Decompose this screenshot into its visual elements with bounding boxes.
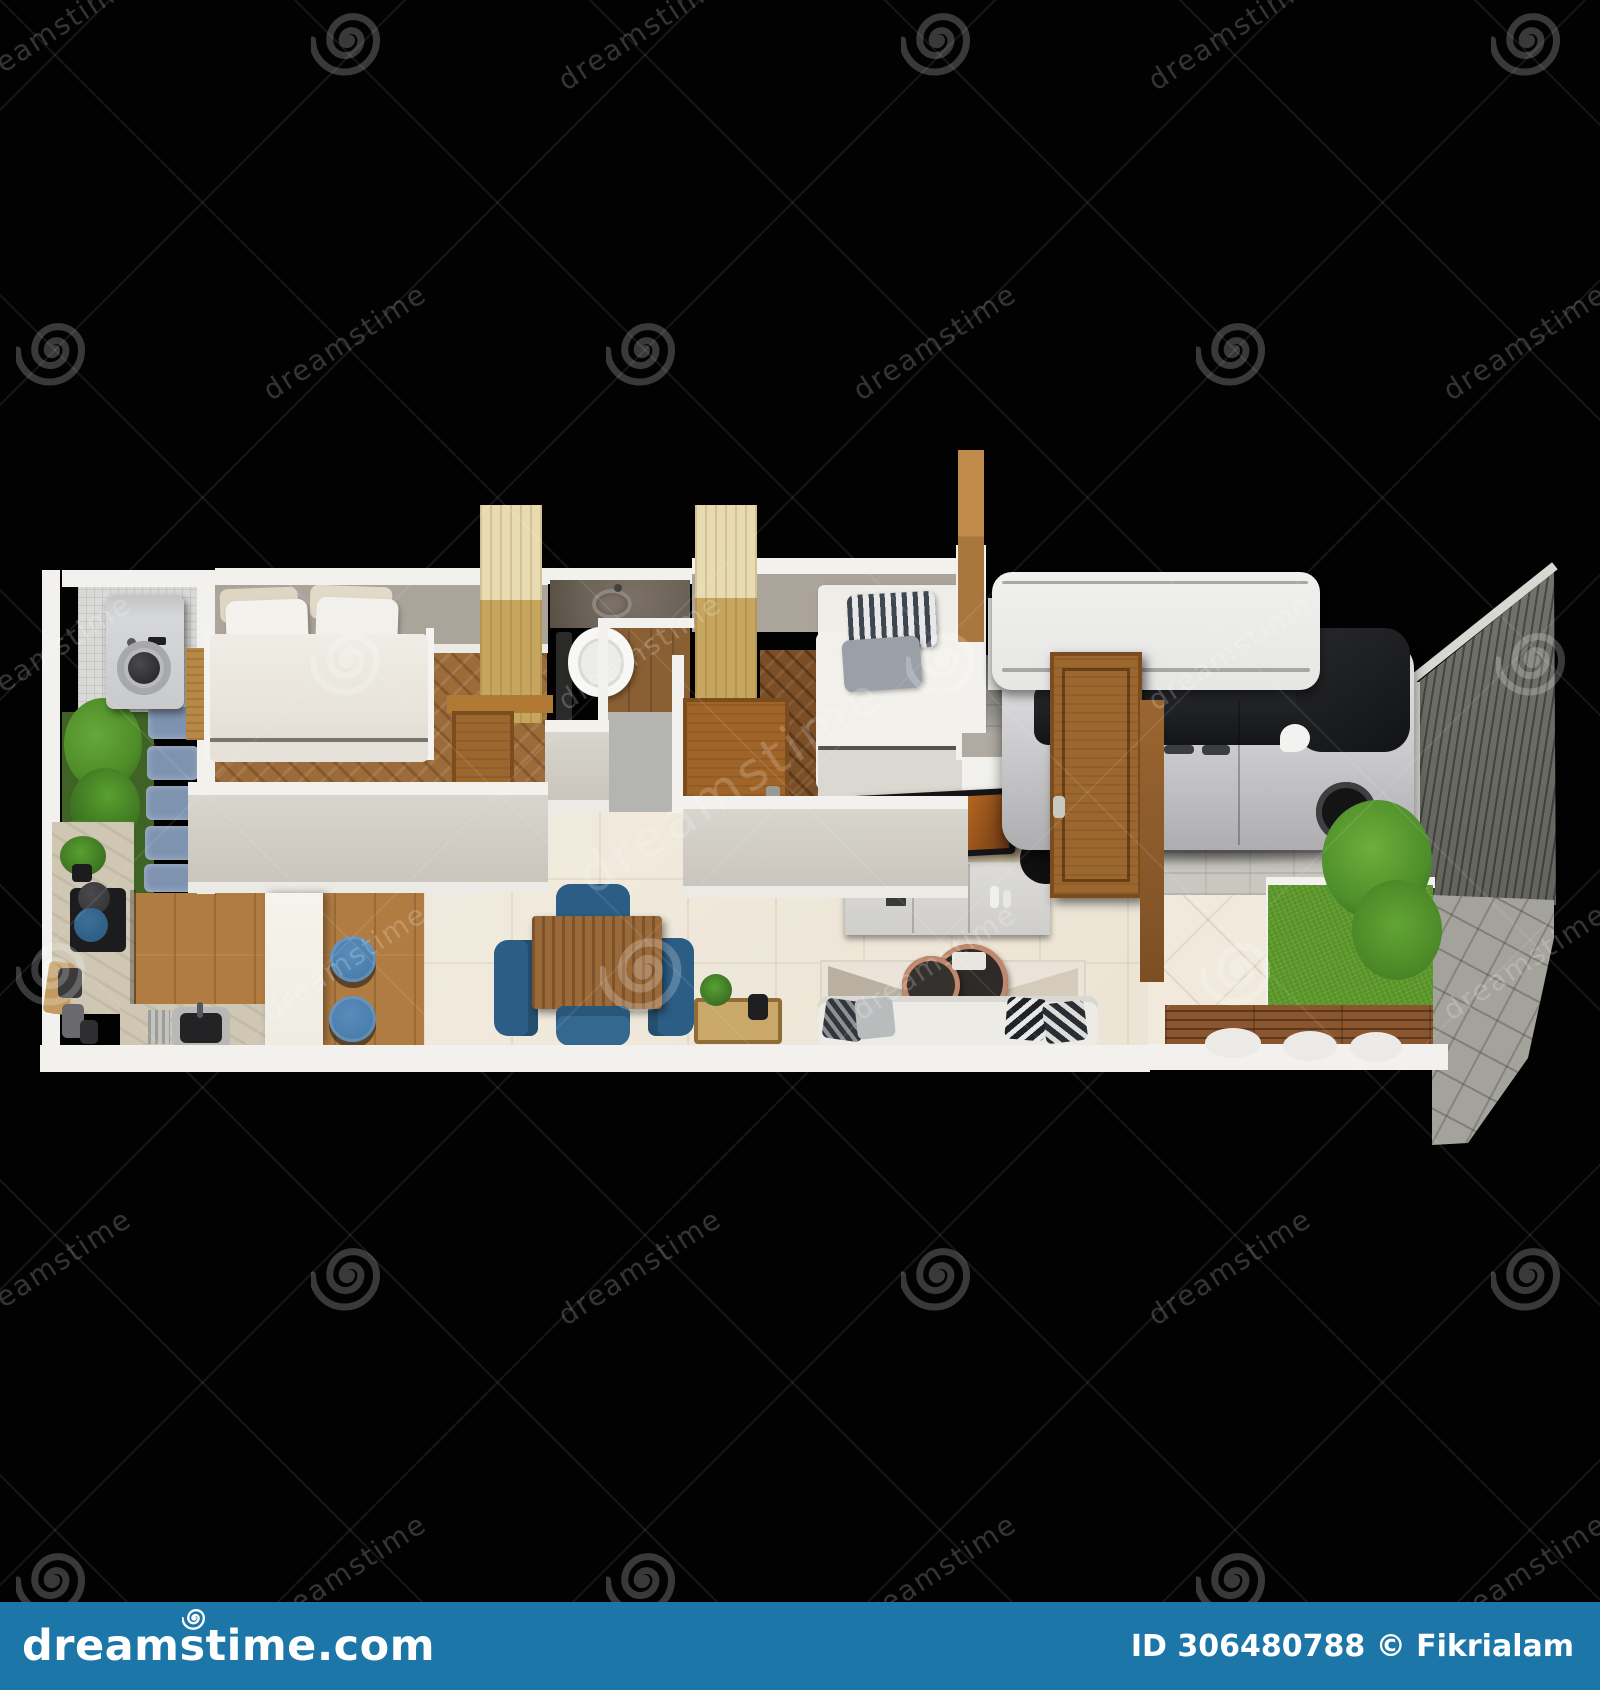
dreamstime-footer-bar: dreamstime.com ID 306480788 © Fikrialam bbox=[0, 1602, 1600, 1690]
front-garden-plant bbox=[1352, 880, 1442, 980]
wardrobe-pillar bbox=[480, 505, 542, 602]
stock-photo-canvas: dreamstime dreamstime dreamstime dreamst… bbox=[0, 0, 1600, 1690]
bedroom1-front-wall-top bbox=[188, 782, 548, 795]
kitchen-jar bbox=[80, 1020, 98, 1044]
side-table-plant bbox=[700, 974, 732, 1006]
shower-glass-frame bbox=[598, 618, 608, 726]
decor-vase bbox=[990, 886, 999, 908]
entry-door-frame bbox=[1140, 700, 1164, 982]
bedroom2-door bbox=[683, 698, 789, 800]
step-pad bbox=[1350, 1032, 1402, 1062]
tv-console-seam bbox=[968, 864, 970, 933]
corner-wood-pillar bbox=[958, 450, 984, 642]
kitchen-jar bbox=[58, 968, 82, 998]
flagstone-path bbox=[1428, 893, 1556, 1148]
kettle-blue bbox=[74, 908, 108, 942]
car-mirror bbox=[1280, 724, 1310, 752]
bar-stool bbox=[330, 936, 376, 982]
bathroom-hall-tile bbox=[606, 712, 674, 812]
dreamstime-logo: dreamstime.com bbox=[22, 1621, 435, 1671]
bedroom1-front-wall-face bbox=[188, 795, 548, 884]
side-table-decor bbox=[748, 994, 768, 1020]
washing-machine-drum-glass bbox=[128, 652, 160, 684]
car-door-handle bbox=[1202, 745, 1230, 755]
kitchen-island bbox=[265, 893, 323, 1045]
bathroom-faucet bbox=[614, 584, 622, 592]
carport-roof bbox=[992, 572, 1320, 690]
bar-stool bbox=[329, 996, 376, 1042]
step-pad bbox=[1283, 1031, 1337, 1061]
svg-text:dreamstime: dreamstime bbox=[257, 277, 433, 407]
wardrobe-pillar bbox=[695, 505, 757, 600]
bed2-pillow-gray bbox=[841, 635, 922, 692]
bed1-duvet bbox=[210, 634, 428, 740]
bed1-blanket bbox=[210, 742, 428, 762]
stepping-stone bbox=[147, 746, 199, 780]
svg-text:dreamstime: dreamstime bbox=[847, 277, 1023, 407]
entry-door-handle bbox=[1053, 796, 1065, 818]
bathroom-sink bbox=[592, 589, 632, 619]
car-door-seam bbox=[1238, 700, 1240, 845]
outer-wall-bottom bbox=[40, 1045, 1150, 1072]
entry-door-panel bbox=[1062, 668, 1130, 882]
image-id-credit: ID 306480788 © Fikrialam bbox=[1131, 1629, 1574, 1664]
kitchen-plant-pot bbox=[72, 864, 92, 882]
bedroom2-front-wall-top bbox=[683, 796, 968, 809]
bedroom2-front-wall-base bbox=[683, 886, 968, 898]
bedroom1-front-wall-base bbox=[188, 882, 548, 893]
bathroom-front-wall-base bbox=[545, 800, 609, 813]
svg-text:dreamstime: dreamstime bbox=[1142, 1202, 1318, 1332]
svg-text:dreamstime: dreamstime bbox=[1437, 277, 1600, 407]
step-pad bbox=[1205, 1028, 1261, 1058]
bathroom-front-wall bbox=[545, 720, 609, 732]
sofa-pillow bbox=[1042, 1000, 1089, 1045]
dining-chair bbox=[556, 1006, 630, 1046]
svg-text:dreamstime: dreamstime bbox=[0, 0, 138, 97]
sofa-pillow bbox=[854, 996, 896, 1040]
kitchen-faucet bbox=[197, 1002, 203, 1018]
dreamstime-logo-spiral-icon bbox=[182, 1605, 208, 1631]
bedroom2-front-wall-face bbox=[683, 809, 968, 888]
carport-roof-seam bbox=[1002, 668, 1310, 672]
carport-roof-seam bbox=[1002, 581, 1308, 584]
sofa-pillow bbox=[1004, 996, 1048, 1041]
sink-drainboard bbox=[148, 1010, 170, 1044]
svg-text:dreamstime: dreamstime bbox=[1142, 0, 1318, 97]
shower-column bbox=[556, 632, 572, 724]
shower-glass-frame bbox=[598, 618, 694, 628]
dreamstime-logo-text: dreamstime.com bbox=[22, 1621, 435, 1671]
car-door-handle bbox=[1164, 745, 1194, 754]
svg-text:dreamstime: dreamstime bbox=[552, 0, 728, 97]
svg-text:dreamstime: dreamstime bbox=[0, 1202, 138, 1332]
svg-text:dreamstime: dreamstime bbox=[552, 1202, 728, 1332]
side-table bbox=[694, 998, 782, 1044]
outer-wall-top-laundry bbox=[62, 570, 215, 587]
kitchen-counter-edge bbox=[130, 890, 136, 1012]
dining-table bbox=[532, 916, 662, 1009]
coffee-table-tray bbox=[952, 952, 986, 970]
decor-vase bbox=[1003, 890, 1011, 908]
bathroom-front-wall-face bbox=[545, 732, 609, 802]
